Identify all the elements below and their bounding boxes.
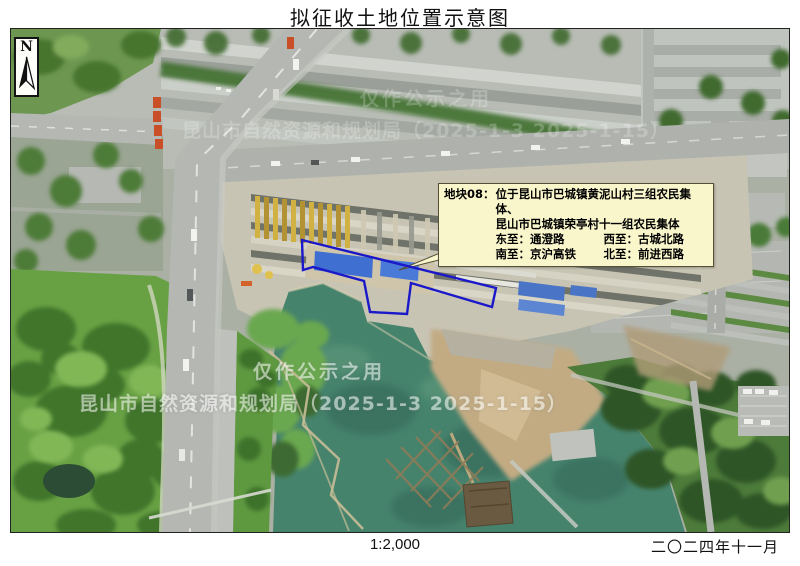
boundary-east: 东至：通澄路 (496, 232, 604, 247)
north-arrow-label: N (16, 39, 37, 55)
boundary-west: 西至：古城北路 (604, 232, 685, 246)
notice-page: 拟征收土地位置示意图 (0, 0, 800, 566)
plot-overlay (11, 29, 789, 532)
page-title: 拟征收土地位置示意图 (0, 2, 800, 31)
date-label: 二〇二四年十一月 (651, 536, 779, 557)
map-area: 仅作公示之用 昆山市自然资源和规划局（2025-1-3 2025-1-15） 仅… (10, 28, 790, 533)
plot-location-line1: 位于昆山市巴城镇黄泥山村三组农民集体、 (496, 187, 708, 217)
plot-location-line2: 昆山市巴城镇荣亭村十一组农民集体 (496, 217, 708, 232)
north-arrow-icon (16, 55, 37, 93)
boundary-north: 北至：前进西路 (604, 247, 685, 261)
plot-callout: 地块08： 位于昆山市巴城镇黄泥山村三组农民集体、 昆山市巴城镇荣亭村十一组农民… (438, 183, 714, 267)
plot-id-label: 地块08： (444, 187, 495, 262)
boundary-south: 南至：京沪高铁 (496, 247, 604, 262)
north-arrow: N (14, 37, 39, 97)
scale-label: 1:2,000 (320, 536, 470, 553)
